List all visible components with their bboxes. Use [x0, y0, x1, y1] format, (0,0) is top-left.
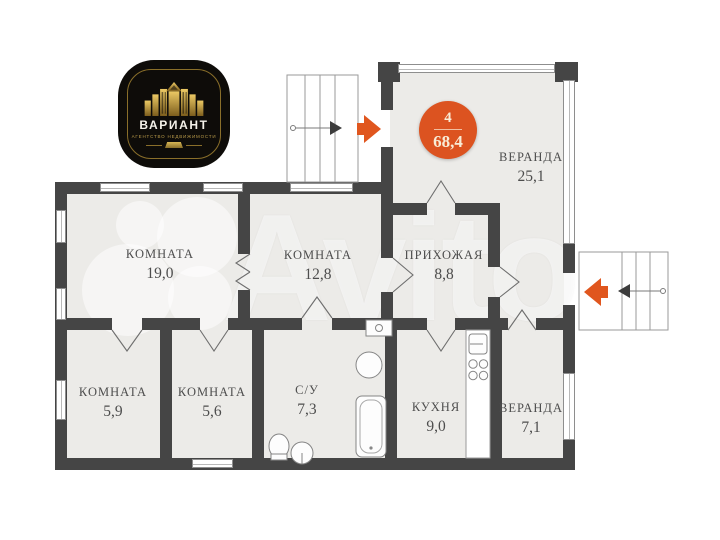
entrance-arrow-right-icon	[357, 115, 381, 143]
door-bathroom	[302, 297, 332, 318]
room-label-komnata-12-8: КОМНАТА 12,8	[284, 248, 352, 284]
door-kitchen	[427, 330, 455, 351]
room-label-su: С/У 7,3	[295, 383, 319, 419]
buildings-icon	[141, 82, 207, 116]
door-hallway-veranda	[427, 181, 455, 203]
room-label-prihozhaya: ПРИХОЖАЯ 8,8	[405, 248, 484, 284]
floor-area-badge: 4 68,4	[419, 101, 477, 159]
logo-ornament	[146, 142, 202, 148]
floorplan-image: Avito	[0, 0, 720, 540]
logo-subtitle-text: АГЕНТСТВО НЕДВИЖИМОСТИ	[132, 134, 217, 139]
bathtub-icon	[356, 396, 386, 457]
brand-logo: ВАРИАНТ АГЕНТСТВО НЕДВИЖИМОСТИ	[118, 60, 230, 168]
room-label-komnata-19: КОМНАТА 19,0	[126, 247, 194, 283]
kitchen-sink-icon	[469, 334, 487, 354]
door-veranda-7	[508, 310, 536, 330]
room-label-kuhnya: КУХНЯ 9,0	[412, 400, 460, 436]
door-room19-room12	[236, 254, 250, 290]
logo-brand-text: ВАРИАНТ	[139, 118, 208, 132]
room-label-veranda-25: ВЕРАНДА 25,1	[499, 150, 563, 186]
badge-floor-number: 4	[444, 111, 452, 126]
logo-frame: ВАРИАНТ АГЕНТСТВО НЕДВИЖИМОСТИ	[127, 69, 221, 159]
corner-sink-icon	[366, 320, 392, 336]
kitchen-fixtures	[466, 330, 490, 458]
badge-total-area: 68,4	[433, 133, 463, 150]
pedestal-sink-icon	[291, 442, 313, 464]
staircase-top	[287, 75, 358, 182]
room-label-komnata-5-9: КОМНАТА 5,9	[79, 385, 147, 421]
bathroom-fixtures	[269, 320, 392, 464]
badge-divider	[434, 129, 462, 130]
room-label-veranda-7: ВЕРАНДА 7,1	[499, 401, 563, 437]
room-label-komnata-5-6: КОМНАТА 5,6	[178, 385, 246, 421]
door-hallway-right	[500, 267, 519, 297]
door-room5-6	[200, 330, 228, 351]
toilet-icon	[269, 434, 289, 460]
door-room5-9	[112, 330, 142, 351]
washbasin-icon	[356, 352, 382, 378]
